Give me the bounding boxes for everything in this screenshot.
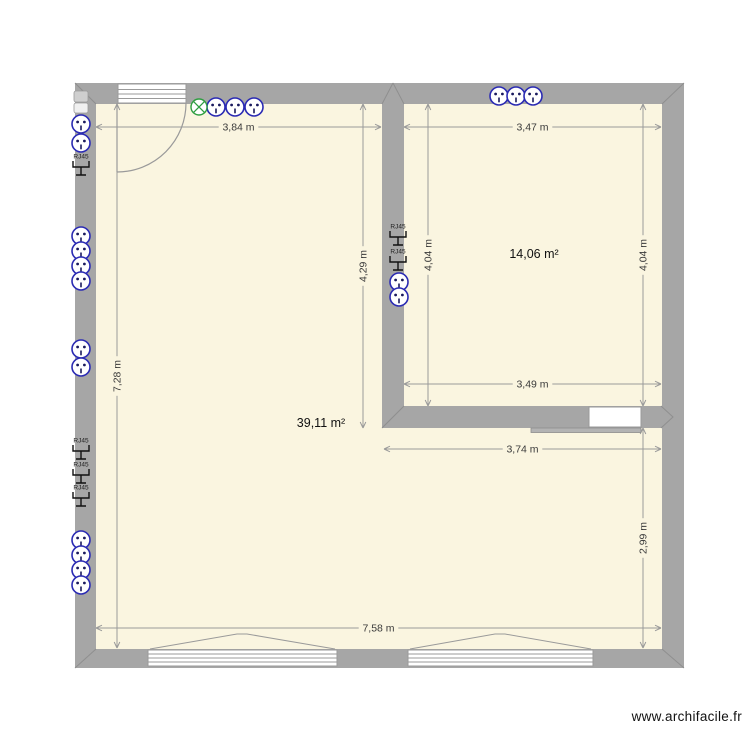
dimension-label[interactable]: 7,28 m xyxy=(112,360,124,392)
wall-middle-vertical[interactable] xyxy=(382,104,404,428)
power-outlet-icon[interactable] xyxy=(226,98,244,116)
wall-right[interactable] xyxy=(662,83,684,668)
floor-plan-page: 3,84 m3,47 m7,28 m4,29 m4,04 m4,04 m3,49… xyxy=(0,0,750,750)
floor-area[interactable] xyxy=(96,104,662,649)
room-area-label[interactable]: 14,06 m² xyxy=(509,247,558,261)
rj45-label: RJ45 xyxy=(390,224,406,231)
power-outlet-icon[interactable] xyxy=(72,576,90,594)
power-outlet-icon[interactable] xyxy=(72,340,90,358)
dimension-label[interactable]: 2,99 m xyxy=(638,522,650,554)
power-outlet-icon[interactable] xyxy=(490,87,508,105)
dimension-label[interactable]: 3,74 m xyxy=(506,444,538,456)
dimension-label[interactable]: 4,04 m xyxy=(638,239,650,271)
power-outlet-icon[interactable] xyxy=(390,288,408,306)
dimension-label[interactable]: 3,47 m xyxy=(516,122,548,134)
power-outlet-icon[interactable] xyxy=(72,134,90,152)
power-outlet-icon[interactable] xyxy=(72,115,90,133)
rj45-label: RJ45 xyxy=(73,462,89,469)
rj45-label: RJ45 xyxy=(73,438,89,445)
power-outlet-icon[interactable] xyxy=(245,98,263,116)
floor-plan-canvas[interactable]: 3,84 m3,47 m7,28 m4,29 m4,04 m4,04 m3,49… xyxy=(0,0,750,750)
rj45-label: RJ45 xyxy=(73,154,89,161)
dimension-label[interactable]: 3,49 m xyxy=(516,379,548,391)
room-area-label[interactable]: 39,11 m² xyxy=(297,416,345,430)
rj45-label: RJ45 xyxy=(390,249,406,256)
dimension-label[interactable]: 7,58 m xyxy=(362,623,394,635)
power-outlet-icon[interactable] xyxy=(507,87,525,105)
power-outlet-icon[interactable] xyxy=(72,358,90,376)
power-outlet-icon[interactable] xyxy=(524,87,542,105)
rj45-label: RJ45 xyxy=(73,485,89,492)
watermark: www.archifacile.fr xyxy=(632,709,742,724)
power-outlet-icon[interactable] xyxy=(207,98,225,116)
dimension-label[interactable]: 3,84 m xyxy=(222,122,254,134)
power-outlet-icon[interactable] xyxy=(72,272,90,290)
light-switch-icon[interactable] xyxy=(74,91,88,113)
ceiling-light-icon[interactable] xyxy=(191,99,207,115)
dimension-label[interactable]: 4,29 m xyxy=(358,250,370,282)
dimension-label[interactable]: 4,04 m xyxy=(423,239,435,271)
sliding-door-leaf xyxy=(531,428,641,433)
